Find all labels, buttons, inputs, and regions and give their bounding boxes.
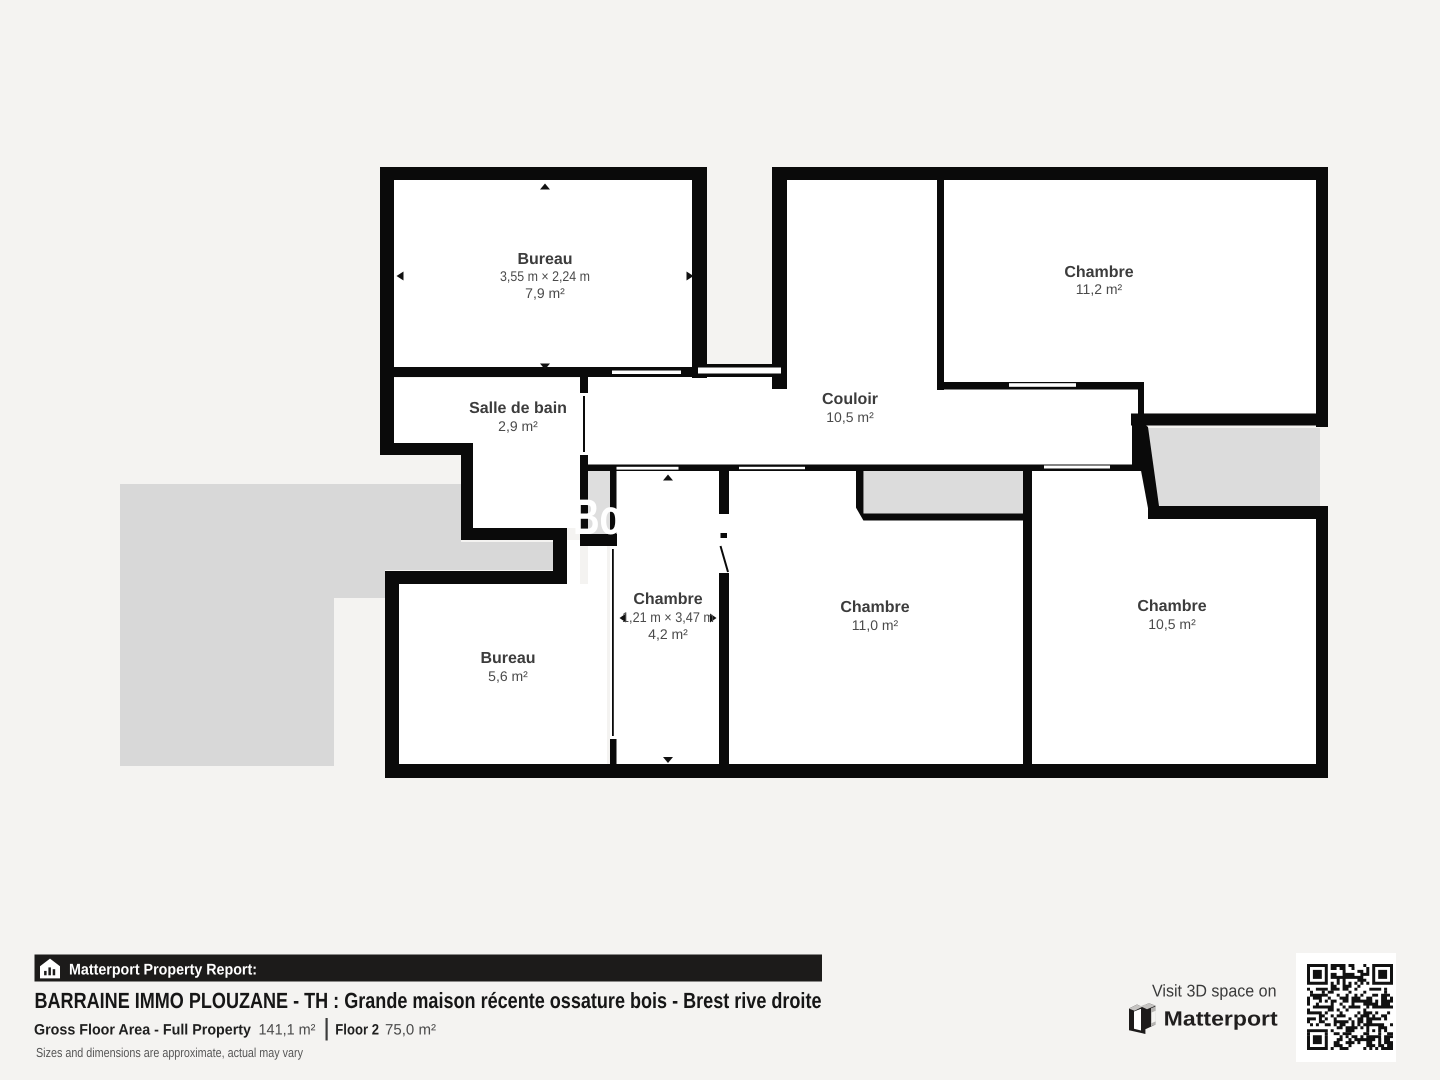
svg-text:75,0 m²: 75,0 m²: [385, 1022, 436, 1039]
svg-text:BARRAINE IMMO PLOUZANE - TH :: BARRAINE IMMO PLOUZANE - TH : Grande mai…: [35, 988, 822, 1013]
svg-text:Bureau: Bureau: [517, 251, 572, 268]
svg-text:Gross Floor Area - Full Proper: Gross Floor Area - Full Property: [34, 1022, 252, 1039]
svg-text:Chambre: Chambre: [840, 599, 909, 616]
svg-text:11,2 m²: 11,2 m²: [1076, 281, 1123, 297]
svg-text:1,21 m × 3,47 m: 1,21 m × 3,47 m: [622, 609, 714, 625]
svg-text:Couloir: Couloir: [822, 391, 878, 408]
svg-text:Salle de bain: Salle de bain: [469, 400, 567, 417]
svg-text:Chambre: Chambre: [633, 591, 702, 608]
svg-text:Floor 2: Floor 2: [335, 1022, 379, 1039]
svg-text:4,2 m²: 4,2 m²: [648, 626, 688, 642]
svg-text:141,1 m²: 141,1 m²: [259, 1022, 316, 1039]
svg-text:Bureau: Bureau: [480, 650, 535, 667]
svg-text:Sizes and dimensions are appro: Sizes and dimensions are approximate, ac…: [36, 1045, 303, 1060]
svg-text:2,9 m²: 2,9 m²: [498, 418, 538, 434]
svg-text:7,9 m²: 7,9 m²: [525, 285, 565, 301]
svg-text:Chambre: Chambre: [1137, 598, 1206, 615]
svg-text:10,5 m²: 10,5 m²: [826, 409, 874, 425]
svg-text:Chambre: Chambre: [1064, 264, 1133, 281]
svg-text:Bo: Bo: [573, 489, 622, 545]
svg-text:11,0 m²: 11,0 m²: [852, 617, 899, 633]
svg-text:3,55 m × 2,24 m: 3,55 m × 2,24 m: [500, 268, 590, 284]
svg-text:5,6 m²: 5,6 m²: [488, 668, 528, 684]
svg-text:10,5 m²: 10,5 m²: [1148, 616, 1196, 632]
svg-text:Matterport: Matterport: [1164, 1008, 1278, 1031]
svg-text:Matterport Property Report:: Matterport Property Report:: [69, 962, 257, 979]
svg-text:Visit 3D space on: Visit 3D space on: [1152, 982, 1277, 1001]
